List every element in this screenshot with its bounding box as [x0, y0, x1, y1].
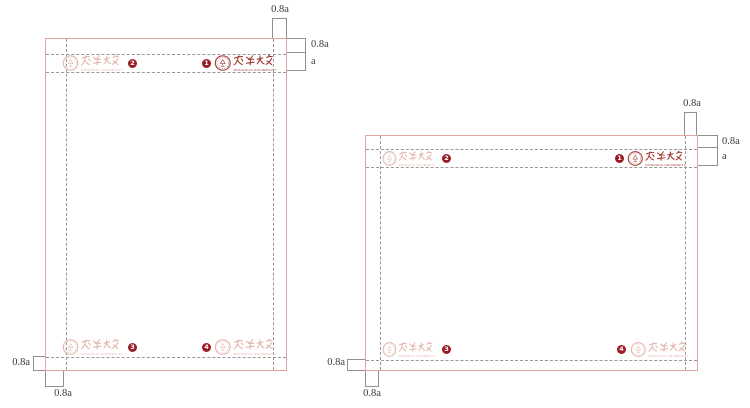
- left-margin-guide: [66, 39, 67, 370]
- dimension-bracket: [698, 135, 718, 148]
- seal-icon: [63, 340, 77, 354]
- bottom-margin-guide: [46, 357, 286, 358]
- position-badge: 2: [128, 59, 137, 68]
- donghua-wordmark: [399, 151, 432, 160]
- dimension-label: 0.8a: [316, 357, 345, 368]
- dimension-bracket: [272, 18, 287, 38]
- university-logo-faded: DONGHUA UNIVERSITY: [382, 341, 440, 358]
- position-badge: 1: [202, 59, 211, 68]
- dimension-label: 0.8a: [676, 98, 708, 109]
- landscape-page: DONGHUA UNIVERSITY 2 1 DONGHUA UNIVERSIT…: [365, 135, 698, 371]
- position-badge: 4: [202, 343, 211, 352]
- university-subtext: DONGHUA UNIVERSITY: [234, 352, 278, 356]
- dimension-label: 0.8a: [1, 357, 30, 368]
- position-badge: 3: [442, 345, 451, 354]
- logo-placement-spec-diagram: DONGHUA UNIVERSITY 2 1 DONGHUA UNIVERSIT…: [0, 0, 750, 408]
- dimension-label: a: [722, 151, 727, 162]
- seal-icon: [63, 56, 77, 70]
- donghua-wordmark: [234, 55, 272, 65]
- donghua-wordmark: [234, 339, 272, 349]
- dimension-bracket: [684, 112, 697, 135]
- donghua-wordmark: [646, 151, 682, 160]
- university-logo-faded: DONGHUA UNIVERSITY: [62, 338, 128, 356]
- seal-icon: [383, 343, 396, 357]
- dimension-bracket: [287, 38, 306, 53]
- dimension-label: 0.8a: [264, 4, 296, 15]
- donghua-wordmark: [82, 339, 119, 349]
- university-subtext: DONGHUA UNIVERSITY: [399, 354, 436, 358]
- donghua-wordmark: [82, 55, 119, 65]
- position-badge: 2: [442, 154, 451, 163]
- dimension-label: 0.8a: [311, 39, 329, 50]
- seal-icon: [628, 152, 642, 166]
- donghua-wordmark: [649, 342, 685, 351]
- dimension-label: 0.8a: [356, 388, 388, 399]
- header-band-guide: [46, 72, 286, 73]
- dimension-bracket: [365, 371, 379, 387]
- left-margin-guide: [380, 136, 381, 370]
- university-subtext: DONGHUA UNIVERSITY: [399, 163, 436, 167]
- university-subtext: DONGHUA UNIVERSITY: [81, 68, 123, 72]
- header-band-guide: [366, 167, 697, 168]
- seal-icon: [383, 152, 396, 166]
- position-badge: 4: [617, 345, 626, 354]
- university-logo-faded: DONGHUA UNIVERSITY: [382, 150, 440, 167]
- donghua-wordmark: [399, 342, 432, 351]
- right-margin-guide: [273, 39, 274, 370]
- university-subtext: DONGHUA UNIVERSITY: [81, 352, 123, 356]
- dimension-label: 0.8a: [47, 388, 79, 399]
- seal-icon: [631, 343, 645, 357]
- seal-icon: [215, 56, 230, 70]
- university-logo-faded: DONGHUA UNIVERSITY: [214, 338, 282, 356]
- dimension-bracket: [287, 53, 306, 71]
- position-badge: 1: [615, 154, 624, 163]
- dimension-bracket: [347, 359, 365, 371]
- dimension-bracket: [33, 356, 45, 371]
- university-logo-faded: DONGHUA UNIVERSITY: [62, 54, 128, 72]
- university-subtext: DONGHUA UNIVERSITY: [648, 354, 689, 358]
- dimension-label: a: [311, 56, 316, 67]
- university-logo-solid: DONGHUA UNIVERSITY: [214, 54, 282, 72]
- dimension-bracket: [45, 371, 64, 387]
- dimension-label: 0.8a: [722, 136, 740, 147]
- portrait-page: DONGHUA UNIVERSITY 2 1 DONGHUA UNIVERSIT…: [45, 38, 287, 371]
- university-subtext: DONGHUA UNIVERSITY: [234, 68, 278, 72]
- dimension-bracket: [698, 148, 718, 166]
- seal-icon: [215, 340, 230, 354]
- right-margin-guide: [685, 136, 686, 370]
- university-logo-faded: DONGHUA UNIVERSITY: [630, 341, 694, 358]
- university-logo-solid: DONGHUA UNIVERSITY: [627, 150, 691, 167]
- position-badge: 3: [128, 343, 137, 352]
- university-subtext: DONGHUA UNIVERSITY: [645, 163, 686, 167]
- bottom-margin-guide: [366, 360, 697, 361]
